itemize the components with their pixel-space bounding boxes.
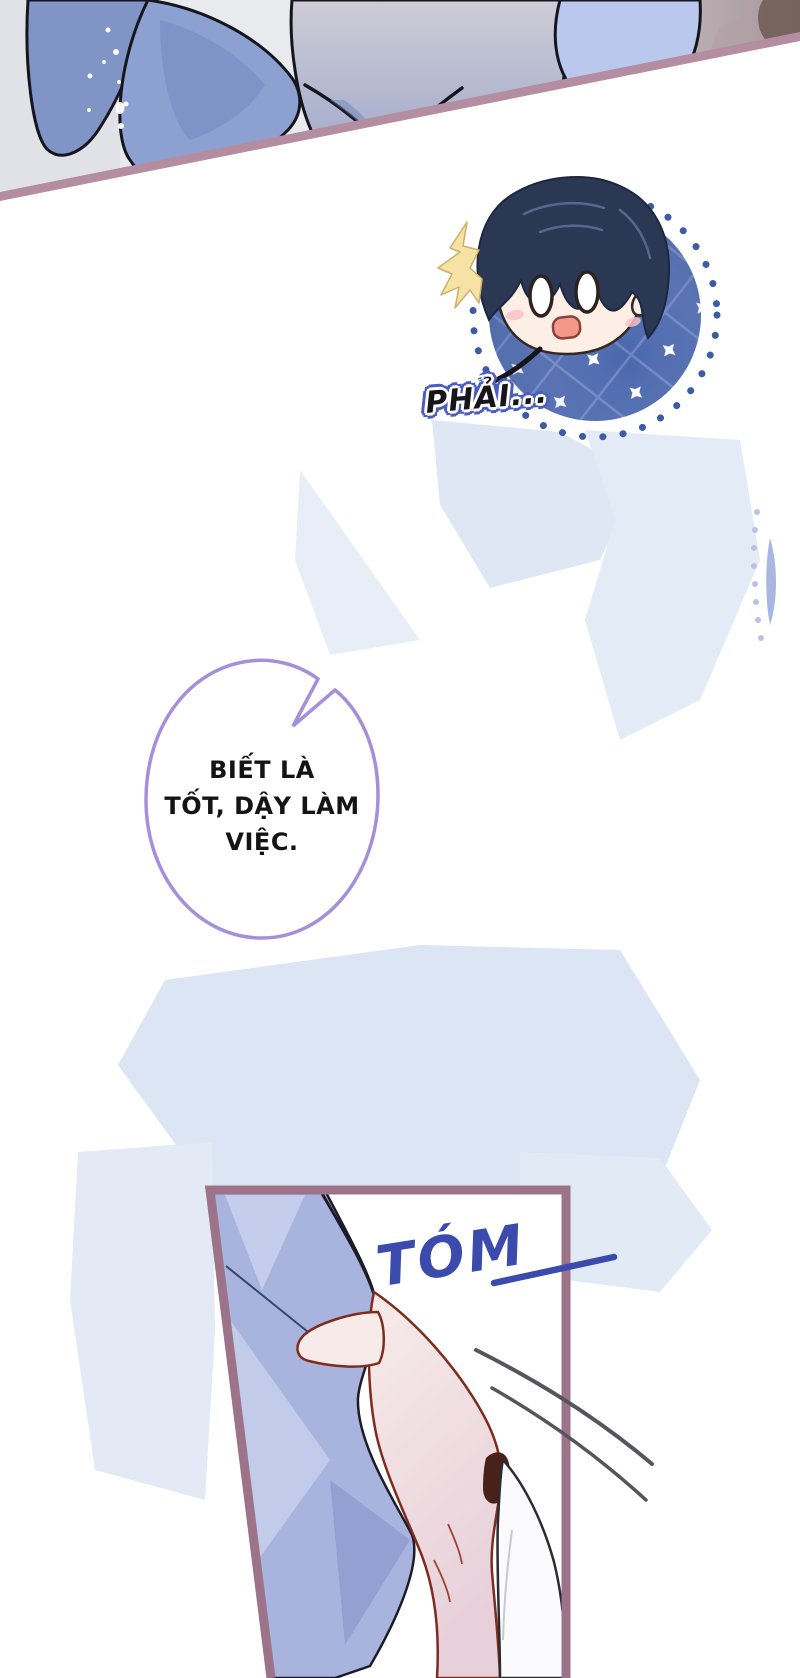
comic-artwork — [0, 0, 800, 1678]
comic-page: PHẢI... BIẾT LÀ TỐT, DẬY LÀM VIỆC. TÓM — [0, 0, 800, 1678]
right-eye — [576, 272, 598, 312]
bubble-line-1: BIẾT LÀ — [150, 752, 374, 788]
bubble-line-2: TỐT, DẬY LÀM — [150, 788, 374, 824]
speech-bubble-text: BIẾT LÀ TỐT, DẬY LÀM VIỆC. — [150, 752, 374, 860]
mouth — [552, 316, 581, 340]
page-edge-ornament — [751, 509, 776, 641]
left-eye — [530, 276, 552, 316]
surprise-spark — [438, 222, 482, 308]
bubble-line-3: VIỆC. — [150, 824, 374, 860]
